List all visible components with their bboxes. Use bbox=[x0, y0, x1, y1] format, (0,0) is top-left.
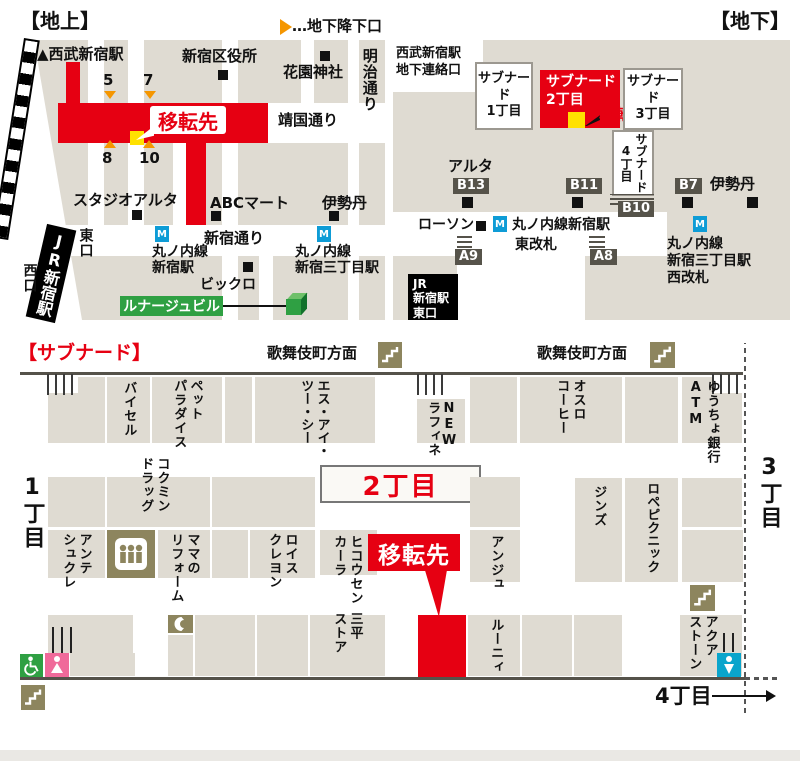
exit-10-label: 10 bbox=[139, 150, 160, 167]
district-boundary-line bbox=[744, 343, 746, 713]
district-3-label: 3丁目 bbox=[755, 455, 783, 530]
hanazono-label: 花園神社 bbox=[283, 64, 343, 81]
shop-label-jins: ジンズ bbox=[590, 485, 606, 527]
lawson-label: ローソン bbox=[418, 217, 474, 233]
stairs-hatch bbox=[47, 374, 77, 395]
bottom-divider bbox=[0, 750, 800, 761]
exit-b13-badge: B13 bbox=[453, 178, 489, 194]
shinjuku-dori-label: 新宿通り bbox=[204, 230, 264, 247]
shop-block bbox=[212, 530, 248, 578]
street bbox=[173, 143, 187, 226]
subnade-3-box: サブナード 3丁目 bbox=[623, 68, 683, 130]
alta-label: アルタ bbox=[448, 158, 493, 175]
district-4-label: 4丁目 bbox=[655, 684, 712, 708]
marunouchi-east-label: 丸ノ内線新宿駅 bbox=[512, 217, 610, 233]
shop-label-mama-reform: ママの リフォーム bbox=[167, 533, 200, 613]
exit-b13-marker bbox=[462, 197, 473, 208]
underground-entrance-icon bbox=[104, 91, 116, 99]
shop-label-aqua-stone: アクア ストーン bbox=[685, 615, 718, 679]
bicqlo-marker bbox=[243, 262, 253, 272]
lunage-building-label-box: ルナージュビル bbox=[120, 296, 223, 316]
district-2-box: 2丁目 bbox=[320, 465, 481, 503]
map-canvas: 【地上】 …地下降下口 【地下】 移転先 JR新宿駅 ▲西武新宿駅 bbox=[0, 0, 800, 761]
stairs-icon bbox=[378, 342, 402, 368]
district-2-label: 2丁目 bbox=[362, 466, 438, 503]
relocation-label: 移転先 bbox=[158, 106, 218, 135]
stairs-hatch bbox=[589, 236, 605, 248]
street-meiji-dori bbox=[348, 40, 359, 320]
shop-label-oslo-coffee: オスロ コーヒー bbox=[553, 379, 586, 441]
stairs-icon bbox=[650, 342, 675, 368]
underground-entrance-icon bbox=[144, 91, 156, 99]
district-1-label: 1丁目 bbox=[18, 475, 46, 550]
isetan-marker bbox=[329, 211, 339, 221]
exit-8-label: 8 bbox=[102, 150, 112, 167]
exit-b11-badge: B11 bbox=[566, 178, 602, 194]
building-cube-icon bbox=[286, 291, 310, 317]
passage-area bbox=[457, 256, 585, 320]
shop-label-pet-paradise: ペット パラダイス bbox=[170, 379, 203, 455]
south-wall-dashed bbox=[745, 677, 778, 680]
subnade-1-box: サブナード 1丁目 bbox=[475, 62, 533, 130]
ground-map: 移転先 JR新宿駅 ▲西武新宿駅 新宿区役所 花園神社 明治通り 靖国通り 5 … bbox=[20, 40, 385, 320]
shop-label-sic: エス・アイ・ ツー・シー bbox=[297, 379, 330, 471]
shop-block bbox=[682, 530, 743, 582]
shop-label-ante-sucre: アンテ シュクレ bbox=[59, 533, 92, 597]
callout-pointer bbox=[424, 571, 448, 617]
toilet-icon bbox=[717, 653, 741, 677]
wheelchair-access-icon bbox=[20, 654, 43, 677]
shop-label-buysell: バイセル bbox=[120, 381, 136, 437]
metro-icon: M bbox=[493, 216, 507, 232]
exit-7-label: 7 bbox=[143, 72, 153, 89]
shop-block bbox=[257, 615, 308, 676]
lunage-building-label: ルナージュビル bbox=[123, 296, 220, 316]
shop-label-sanpei: 三平 ストア bbox=[330, 612, 363, 666]
relocation-target-block bbox=[418, 615, 466, 677]
subnade-4-box: サブナード 4丁目 bbox=[612, 130, 654, 196]
isetan-label: 伊勢丹 bbox=[710, 176, 755, 193]
hanazono-marker bbox=[320, 51, 330, 61]
district-4-arrowhead bbox=[766, 690, 776, 702]
east-exit-label: 東口 bbox=[76, 228, 94, 258]
kabukicho-direction-label: 歌舞伎町方面 bbox=[267, 345, 357, 362]
shop-label-ange: アンジュ bbox=[487, 535, 503, 591]
shop-label-hikousen: ヒコウセン カーラ bbox=[330, 535, 363, 615]
public-phone-icon bbox=[168, 615, 193, 633]
shop-label-rope-picnic: ロペピクニック bbox=[643, 482, 659, 573]
shop-block bbox=[212, 477, 315, 527]
underground-entrance-icon bbox=[280, 19, 292, 35]
marunouchi-sanchome-label: 丸ノ内線 新宿三丁目駅 bbox=[295, 244, 379, 276]
subnade-4-label: サブナード 4丁目 bbox=[618, 133, 648, 193]
east-gate-label: 東改札 bbox=[515, 237, 557, 253]
escalator-lines bbox=[723, 633, 739, 652]
ward-office-marker bbox=[218, 70, 228, 80]
seibu-station-label: ▲西武新宿駅 bbox=[37, 46, 124, 63]
underground-entrance-icon bbox=[143, 140, 155, 148]
metro-icon: M bbox=[155, 226, 169, 242]
shop-label-yucho: ゆうちょ銀行 ATM bbox=[687, 380, 720, 474]
escalator-lines bbox=[52, 627, 74, 653]
stairs-icon bbox=[21, 685, 45, 710]
shop-block bbox=[195, 615, 255, 676]
abc-mart-label: ABCマート bbox=[210, 195, 289, 212]
subnade-map: 【サブナード】 歌舞伎町方面 歌舞伎町方面 バイセル ペット パラダイス エス・… bbox=[0, 335, 800, 761]
subnade-route-south bbox=[186, 143, 206, 225]
meiji-dori-label: 明治通り bbox=[360, 48, 379, 112]
stairs-hatch bbox=[457, 236, 472, 248]
abc-mart-marker bbox=[211, 211, 221, 221]
toilet-icon bbox=[45, 653, 69, 677]
shop-block bbox=[522, 615, 572, 676]
station-triangle-marker: ▲ bbox=[37, 45, 49, 63]
relocation-callout: 移転先 bbox=[150, 106, 226, 134]
shop-block bbox=[574, 615, 622, 676]
relocation-label: 移転先 bbox=[378, 536, 450, 570]
metro-icon: M bbox=[693, 216, 707, 232]
isetan-marker bbox=[747, 197, 758, 208]
north-wall bbox=[20, 372, 743, 375]
underground-map-title: 【地下】 bbox=[710, 10, 790, 33]
jr-east-exit-box: JR 新宿駅 東口 bbox=[408, 274, 458, 320]
shop-block bbox=[625, 377, 678, 443]
bicqlo-label: ビックロ bbox=[200, 277, 256, 293]
legend-text: …地下降下口 bbox=[292, 17, 382, 35]
district-4-arrow bbox=[712, 695, 768, 697]
stairs-icon bbox=[690, 585, 715, 611]
shop-block bbox=[470, 477, 520, 527]
exit-b7-marker bbox=[682, 197, 693, 208]
seibu-link-label: 西武新宿駅 地下連絡口 bbox=[396, 46, 461, 80]
underground-map: 西武新宿駅 地下連絡口 サブナード 1丁目 サブナード 2丁目 移転先 サブナー… bbox=[393, 40, 790, 320]
shop-block bbox=[48, 477, 105, 527]
legend: …地下降下口 bbox=[280, 16, 382, 35]
west-exit-label: 西口 bbox=[20, 263, 38, 293]
shop-label-kokumin: コクミン ドラッグ bbox=[137, 457, 170, 525]
studio-alta-marker bbox=[132, 210, 142, 220]
subnade-title: 【サブナード】 bbox=[18, 343, 151, 365]
lunage-connector-line bbox=[223, 305, 286, 307]
shop-block bbox=[470, 377, 517, 443]
marunouchi-west-label: 丸ノ内線 新宿三丁目駅 西改札 bbox=[667, 236, 751, 286]
ground-map-title: 【地上】 bbox=[20, 10, 100, 33]
exit-a9-badge: A9 bbox=[455, 249, 482, 265]
isetan-label: 伊勢丹 bbox=[322, 195, 367, 212]
yasukuni-dori-label: 靖国通り bbox=[278, 112, 338, 129]
relocation-callout: 移転先 bbox=[368, 534, 460, 571]
exit-b7-badge: B7 bbox=[675, 178, 702, 194]
kabukicho-direction-label: 歌舞伎町方面 bbox=[537, 345, 627, 362]
ward-office-label: 新宿区役所 bbox=[182, 48, 257, 65]
south-wall bbox=[20, 677, 745, 680]
shop-label-new-raffine: NEW ラフィネ bbox=[424, 401, 457, 465]
metro-icon: M bbox=[317, 226, 331, 242]
exit-a8-badge: A8 bbox=[590, 249, 617, 265]
marunouchi-shinjuku-label: 丸ノ内線 新宿駅 bbox=[152, 244, 208, 276]
exit-b10-badge: B10 bbox=[618, 201, 654, 217]
shop-label-lois-crayon: ロイス クレヨン bbox=[265, 533, 298, 599]
subnade-route-north bbox=[66, 62, 80, 107]
shop-block bbox=[225, 377, 252, 443]
subnade-2-label: サブナード 2丁目 bbox=[540, 70, 620, 109]
exit-b11-marker bbox=[572, 197, 583, 208]
shop-block bbox=[70, 653, 135, 676]
stairs-hatch bbox=[417, 374, 444, 395]
shop-label-rooney: ルーニィ bbox=[487, 618, 503, 674]
street bbox=[259, 256, 273, 320]
jr-east-exit-label: JR 新宿駅 東口 bbox=[408, 274, 458, 323]
exit-5-label: 5 bbox=[103, 72, 113, 89]
elevator-icon bbox=[107, 530, 155, 578]
studio-alta-label: スタジオアルタ bbox=[73, 192, 178, 209]
relocation-marker bbox=[568, 112, 585, 128]
lawson-marker bbox=[476, 221, 486, 231]
underground-entrance-icon bbox=[104, 140, 116, 148]
shop-block bbox=[682, 478, 742, 527]
shop-block bbox=[168, 635, 193, 676]
